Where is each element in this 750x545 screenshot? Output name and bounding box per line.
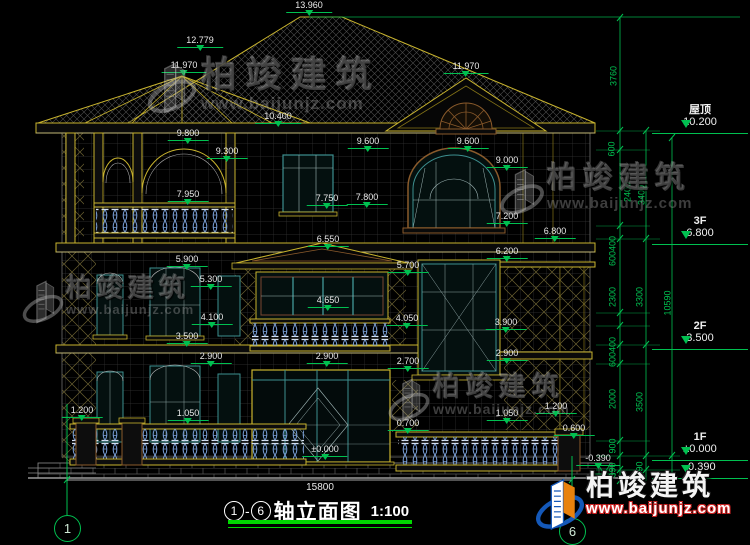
dimension-label: 4.650	[317, 296, 340, 307]
dimension-label: 4.100	[201, 313, 224, 324]
elevation-label: 3F	[652, 215, 748, 227]
elevation-marker-3f: 3F 6.800	[652, 215, 748, 245]
dimension-label: 5.900	[176, 255, 199, 266]
dimension-chain-label: 3500	[636, 392, 645, 412]
dimension-label: 9.600	[457, 137, 480, 148]
elevation-value-below: -0.390	[652, 461, 748, 473]
dimension-label: 1.200	[545, 402, 568, 413]
dimension-label: 6.200	[496, 247, 519, 258]
dimension-chain-label: 2000	[609, 389, 618, 409]
dimension-label: 9.600	[357, 137, 380, 148]
elevation-level-symbol	[652, 133, 748, 134]
dimension-label: 9.300	[216, 147, 239, 158]
dimension-label: 1.200	[71, 406, 94, 417]
title-scale: 1:100	[371, 503, 409, 520]
dimension-label: 1.050	[177, 409, 200, 420]
dimension-label: 9.800	[177, 129, 200, 140]
dimension-chain-label: 3300	[636, 287, 645, 307]
elevation-level-symbol	[652, 460, 748, 461]
dimension-label: 6.800	[544, 227, 567, 238]
dimension-label: 11.970	[171, 61, 198, 72]
dimension-label: 7.750	[316, 194, 339, 205]
dimension-label: 10.400	[264, 112, 292, 123]
elevation-marker-2f: 2F 3.500	[652, 320, 748, 350]
dimension-chain-label: 600	[608, 141, 617, 156]
axis-number: 6	[569, 524, 576, 539]
dimension-label: 2.900	[496, 349, 519, 360]
dimension-label: 0.700	[397, 419, 420, 430]
elevation-marker-1f: 1F ±0.000 -0.390	[652, 431, 748, 479]
dimension-label: 6.550	[317, 235, 340, 246]
dimension-label: 4.050	[396, 314, 419, 325]
dimension-label: 1.050	[496, 409, 519, 420]
elevation-level-symbol	[652, 244, 748, 245]
roof	[38, 17, 595, 134]
dimension-chain-label: 10590	[664, 290, 673, 315]
dimension-label: 9.000	[496, 156, 519, 167]
elevation-value: 6.800	[652, 227, 748, 239]
elevation-value: 3.500	[652, 332, 748, 344]
axis-number: 1	[64, 521, 71, 536]
elevation-value: 10.200	[652, 116, 748, 128]
dimension-label: 2.700	[397, 357, 420, 368]
title-dash: -	[245, 503, 250, 519]
dimension-chain-label: 2300	[609, 287, 618, 307]
dimension-label: 2.900	[316, 352, 339, 363]
dimension-chain-label: 900	[609, 438, 618, 453]
dimension-label: 5.300	[200, 275, 223, 286]
dimension-chain-label: 600400	[609, 236, 618, 266]
dimension-label: 0.600	[563, 424, 586, 435]
title-underline-thin	[228, 527, 412, 528]
dimension-label: 11.970	[453, 62, 480, 73]
dimension-chain-label: 600400	[609, 337, 618, 367]
elevation-level-symbol	[652, 349, 748, 350]
dimension-label: 7.200	[496, 212, 519, 223]
elevation-level-symbol	[652, 478, 748, 479]
dimension-chain-label: 3400	[638, 185, 647, 205]
title-axis-start: 1	[224, 501, 244, 521]
dimension-label: 7.800	[356, 193, 379, 204]
elevation-value: ±0.000	[652, 443, 748, 455]
elevation-label: 屋顶	[652, 104, 748, 116]
dimension-label: 13.960	[295, 1, 323, 12]
dimension-label: 2.900	[200, 352, 223, 363]
dimension-label: ±0.000	[311, 445, 338, 456]
axis-bubble-1: 1	[54, 515, 81, 542]
elevation-label: 1F	[652, 431, 748, 443]
dimension-label: 3.500	[176, 332, 199, 343]
overall-width-dimension: 15800	[306, 482, 334, 493]
axis-bubble-6: 6	[559, 518, 586, 545]
dimension-chain-label: 3760	[610, 66, 619, 86]
dimension-chain-label: 390	[636, 461, 645, 476]
title-underline-thick	[228, 520, 412, 524]
dimension-label: 5.700	[397, 261, 420, 272]
cad-elevation-drawing: 13.96012.77911.97011.97010.4009.8009.300…	[0, 0, 750, 544]
dimension-label: 3.900	[495, 318, 518, 329]
dimension-chain-label: 2400	[624, 182, 633, 202]
elevation-label: 2F	[652, 320, 748, 332]
second-floor-right-window	[412, 260, 508, 380]
dimension-label: 7.950	[177, 190, 200, 201]
dimension-label: 12.779	[186, 36, 214, 47]
elevation-marker-roof: 屋顶 10.200	[652, 104, 748, 134]
title-axis-end: 6	[251, 501, 271, 521]
dimension-chain-label: 390	[609, 462, 618, 477]
second-floor-balcony	[250, 272, 390, 351]
